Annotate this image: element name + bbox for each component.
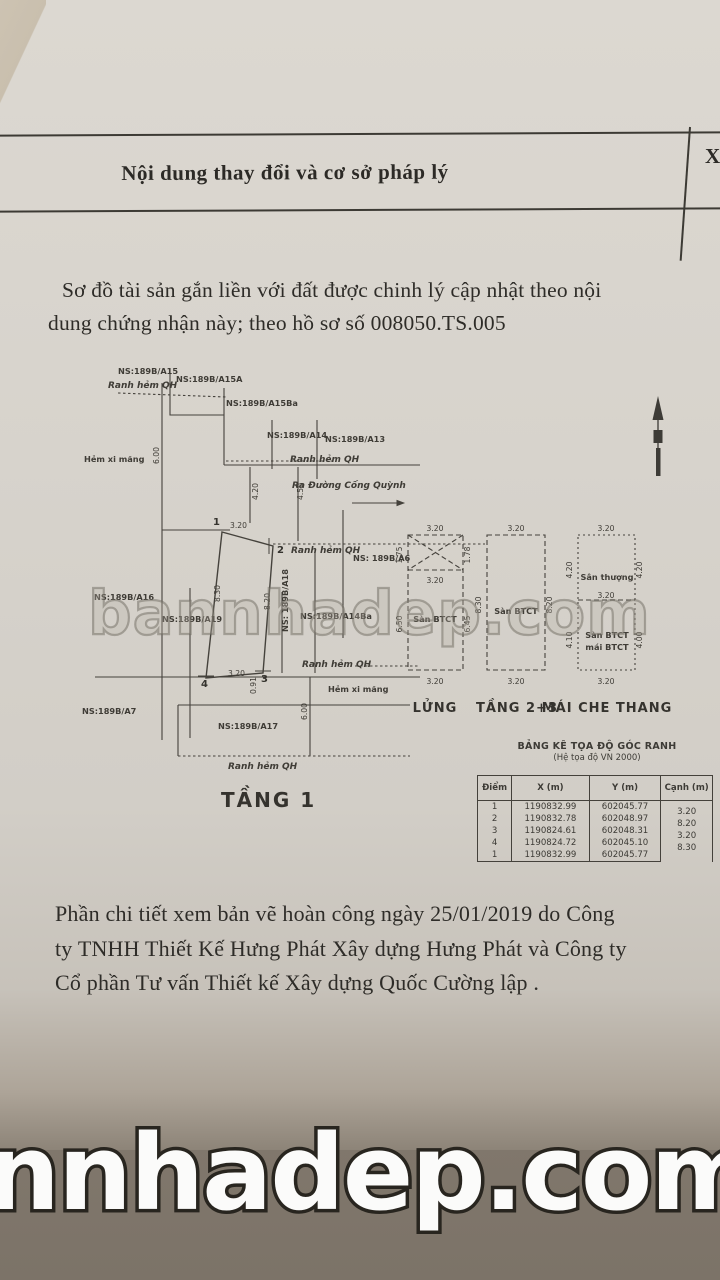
cell-point: 2 [478, 813, 512, 825]
street-label: Ranh hẻm QH [302, 659, 372, 670]
cell-point: 3 [478, 825, 512, 837]
cell-x: 1190832.99 [512, 801, 590, 814]
street-label: Ranh hẻm QH [228, 761, 298, 772]
dim-label: 1.78 [463, 546, 472, 563]
dim-label: 3.20 [427, 524, 444, 533]
cell-y: 602048.97 [589, 813, 661, 825]
caption-mai: MÁI CHE THANG [542, 700, 673, 716]
watermark-bottom-fill: nnhadep.com [0, 1112, 720, 1234]
dim-label: 4.20 [251, 483, 260, 500]
section-header: Nội dung thay đổi và cơ sở pháp lý [0, 131, 720, 212]
col-header-x: X (m) [512, 776, 590, 801]
edge-length: 3.20 [661, 831, 712, 841]
dim-label: 4.20 [635, 561, 644, 578]
edge-length: 3.20 [661, 807, 712, 817]
dim-label: 3.20 [427, 677, 444, 686]
coordinate-table-title: BẢNG KÊ TỌA ĐỘ GÓC RANH [477, 741, 717, 752]
street-label: Hẻm xi măng [328, 684, 389, 694]
survey-point: 4 [201, 679, 208, 690]
north-arrow-icon [653, 396, 664, 476]
survey-point: 2 [277, 545, 284, 556]
street-label: Ranh hẻm QH [108, 380, 178, 391]
parcel-label: NS:189B/A15 [118, 366, 178, 376]
footnote-line-3: Cổ phần Tư vấn Thiết kế Xây dựng Quốc Cư… [55, 970, 539, 995]
dim-label: 6.00 [300, 703, 309, 720]
dim-label: 3.20 [230, 521, 247, 530]
footnote-line-1: Phần chi tiết xem bản vẽ hoàn công ngày … [55, 901, 615, 926]
coordinate-table-subtitle: (Hệ tọa độ VN 2000) [477, 753, 717, 763]
dim-label: 1.75 [395, 546, 404, 563]
document-paper: Nội dung thay đổi và cơ sở pháp lý X Sơ … [0, 0, 720, 1150]
table-row: 1 1190832.99 602045.77 3.20 8.20 3.20 8.… [478, 801, 713, 814]
cell-point: 4 [478, 837, 512, 849]
cell-point: 1 [478, 801, 512, 814]
caption-lung: LỬNG [413, 699, 458, 716]
cell-x: 1190832.78 [512, 813, 590, 825]
parcel-label: NS:189B/A17 [218, 721, 278, 731]
right-column-text: X [705, 144, 720, 169]
coordinate-table: BẢNG KÊ TỌA ĐỘ GÓC RANH (Hệ tọa độ VN 20… [477, 741, 717, 862]
parcel-label: NS:189B/A15Ba [226, 398, 298, 408]
col-header-y: Y (m) [589, 776, 661, 801]
street-label: Ra Đường Cống Quỳnh [292, 480, 406, 491]
street-label: Hẻm xi măng [84, 454, 145, 464]
watermark-bottom: nnhadep.com nnhadep.com [0, 1112, 720, 1234]
cell-x: 1190824.72 [512, 837, 590, 849]
survey-point: 3 [261, 674, 268, 685]
edge-length: 8.20 [661, 819, 712, 829]
cell-y: 602048.31 [589, 825, 661, 837]
dim-label: 3.20 [508, 524, 525, 533]
cell-y: 602045.77 [589, 849, 661, 862]
dim-label: 6.00 [152, 447, 161, 464]
cell-y: 602045.77 [589, 801, 661, 814]
parcel-label: NS:189B/A7 [82, 706, 137, 716]
site-plan-lines [95, 368, 485, 756]
street-label: Ranh hẻm QH [290, 454, 360, 465]
dim-label: 4.20 [565, 561, 574, 578]
col-header-diem: Điểm [478, 776, 512, 801]
floor1-caption: TẦNG 1 [221, 786, 316, 812]
page-corner [0, 0, 46, 128]
dim-label: 0.91 [249, 677, 258, 694]
parcel-label: NS:189B/A13 [325, 434, 385, 444]
parcel-label: NS:189B/A14 [267, 430, 327, 440]
dim-label: 3.20 [598, 524, 615, 533]
edge-length: 8.30 [661, 843, 712, 853]
cell-x: 1190824.61 [512, 825, 590, 837]
survey-point: 1 [213, 517, 220, 528]
cell-x: 1190832.99 [512, 849, 590, 862]
footnote-line-2: ty TNHH Thiết Kế Hưng Phát Xây dựng Hưng… [55, 936, 627, 961]
intro-line-1: Sơ đồ tài sản gắn liền với đất được chin… [62, 278, 601, 302]
dim-label: 3.20 [228, 669, 245, 678]
parcel-label: NS:189B/A15A [176, 374, 243, 384]
dim-label: 3.20 [598, 677, 615, 686]
watermark-middle: bannhadep.com [88, 578, 651, 649]
intro-paragraph: Sơ đồ tài sản gắn liền với đất được chin… [48, 274, 688, 340]
photo-stage: Nội dung thay đổi và cơ sở pháp lý X Sơ … [0, 0, 720, 1280]
col-header-canh: Cạnh (m) [661, 776, 713, 801]
cell-edges: 3.20 8.20 3.20 8.30 [661, 801, 713, 862]
dim-label: 3.20 [508, 677, 525, 686]
dim-label: 4.50 [296, 483, 305, 500]
coordinate-grid: Điểm X (m) Y (m) Cạnh (m) 1 1190832.99 6… [477, 775, 713, 862]
street-label: Ranh hẻm QH [291, 545, 361, 556]
footnote-paragraph: Phần chi tiết xem bản vẽ hoàn công ngày … [55, 897, 705, 1001]
cell-y: 602045.10 [589, 837, 661, 849]
cell-point: 1 [478, 849, 512, 862]
intro-line-2: dung chứng nhận này; theo hồ sơ số 00805… [48, 311, 506, 335]
page-title: Nội dung thay đổi và cơ sở pháp lý [121, 158, 598, 185]
